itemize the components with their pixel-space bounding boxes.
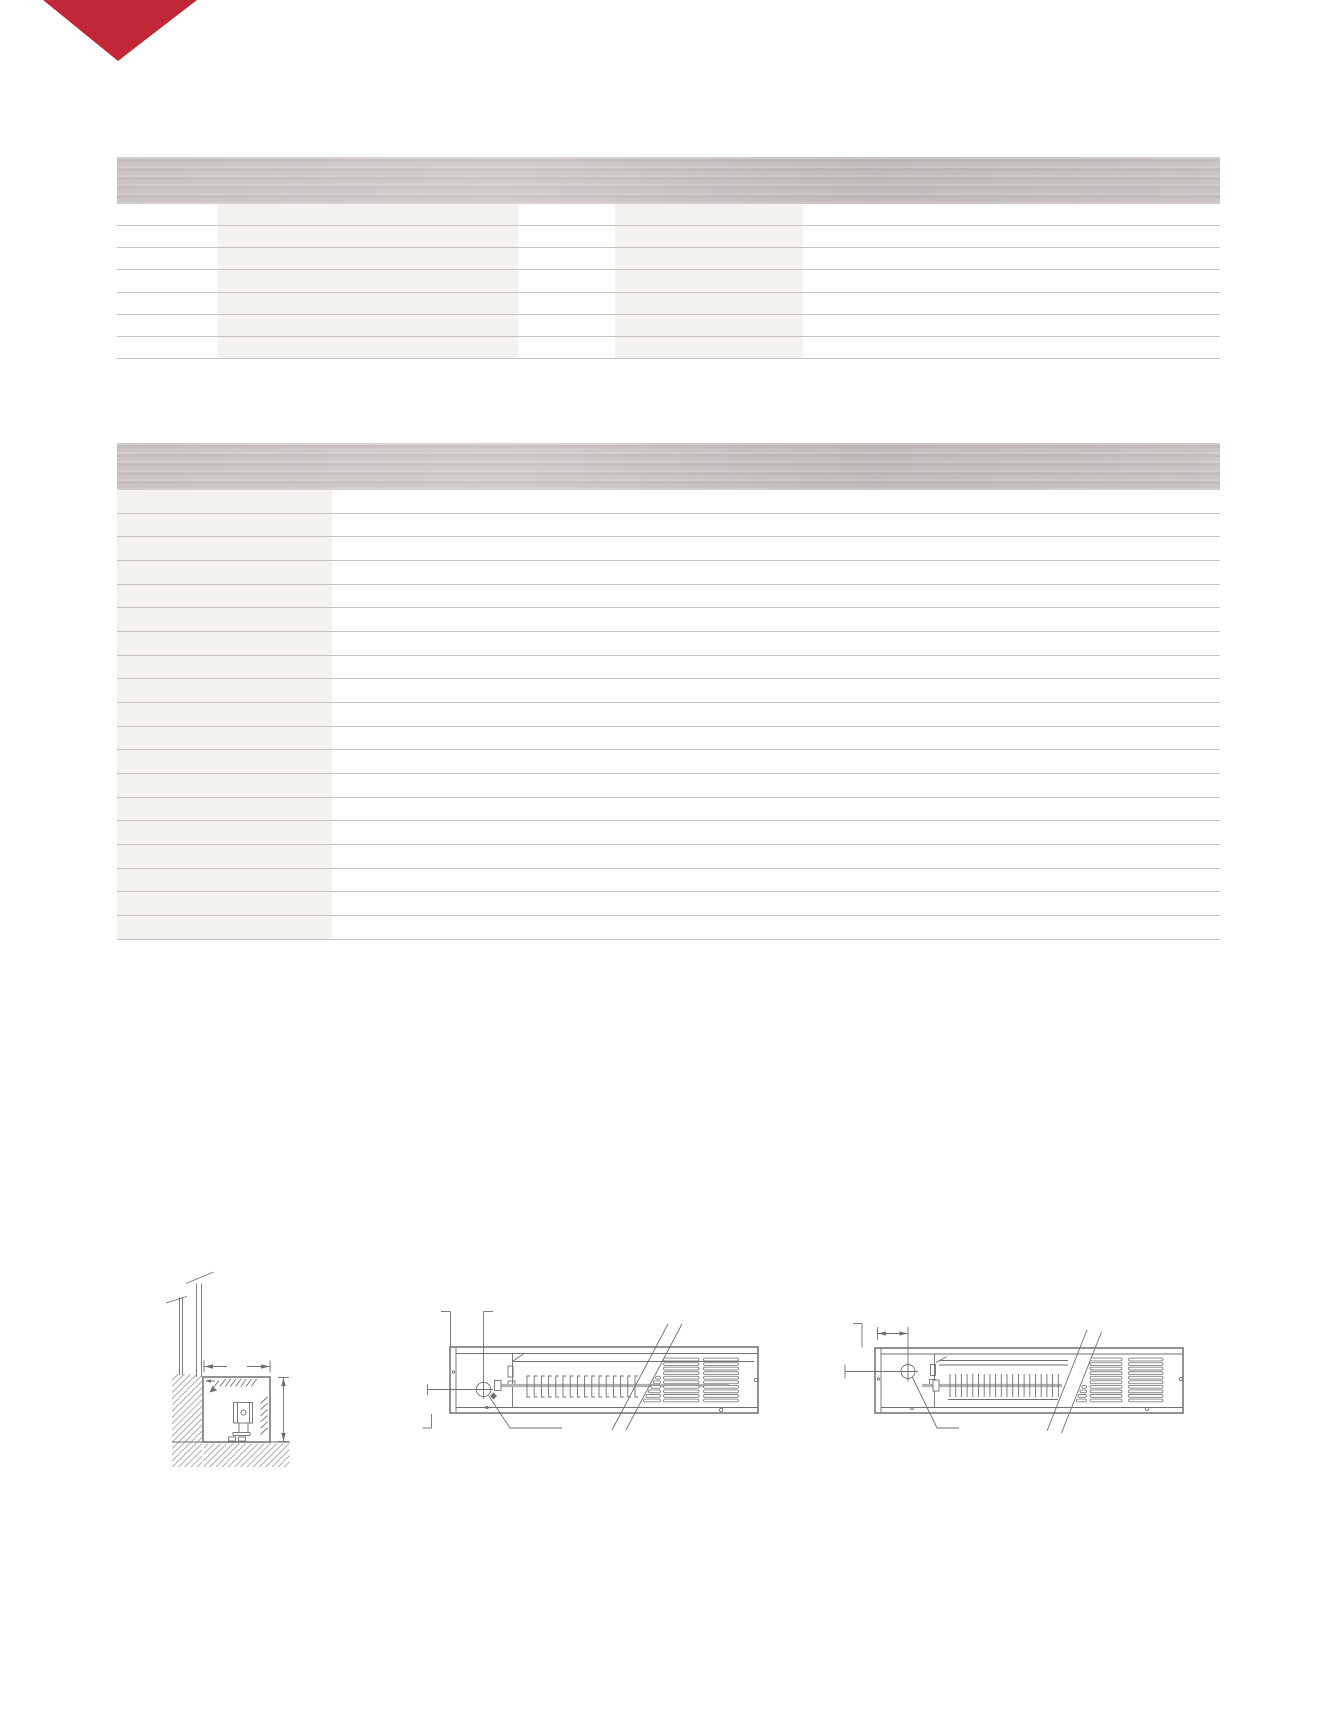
- document-page: [0, 0, 1338, 1731]
- table-row: [117, 750, 1220, 774]
- valve-symbol: [428, 1312, 498, 1400]
- hatched-wall: [172, 1374, 202, 1467]
- spec-table-upper: [117, 157, 1220, 359]
- table-row: [117, 774, 1220, 798]
- table-row: [117, 490, 1220, 514]
- fan-unit: [229, 1403, 253, 1442]
- hatch-tick-marks: [220, 1379, 268, 1435]
- table-row: [117, 608, 1220, 632]
- table-body: [117, 490, 1220, 940]
- table-row: [117, 585, 1220, 609]
- table-row: [117, 337, 1220, 359]
- table-row: [117, 798, 1220, 822]
- table-row: [117, 845, 1220, 869]
- triangle-down-icon: [43, 0, 197, 61]
- wall-section-drawing: [166, 1272, 290, 1467]
- hatched-floor: [204, 1444, 290, 1468]
- table-row: [117, 632, 1220, 656]
- table-row: [117, 869, 1220, 893]
- table-header-band: [117, 157, 1220, 204]
- spec-table-lower: [117, 443, 1220, 940]
- table-row: [117, 293, 1220, 315]
- table-row: [117, 537, 1220, 561]
- table-row: [117, 821, 1220, 845]
- outlet-grille: [1076, 1358, 1163, 1402]
- convector-plan-drawing-2: [845, 1324, 1183, 1434]
- table-body: [117, 204, 1220, 359]
- convector-plan-drawing-1: [423, 1312, 759, 1431]
- table-row: [117, 226, 1220, 248]
- table-row: [117, 656, 1220, 680]
- table-row: [117, 248, 1220, 270]
- outlet-grille: [644, 1358, 739, 1402]
- table-row: [117, 679, 1220, 703]
- table-row: [117, 514, 1220, 538]
- width-dimension: [204, 1361, 270, 1373]
- table-row: [117, 204, 1220, 226]
- valve-symbol: [898, 1362, 918, 1382]
- leader-line: [489, 1396, 563, 1429]
- table-row: [117, 315, 1220, 337]
- table-row: [117, 916, 1220, 940]
- height-dimension: [278, 1378, 289, 1442]
- table-row: [117, 727, 1220, 751]
- table-row: [117, 892, 1220, 916]
- table-header-band: [117, 443, 1220, 490]
- table-row: [117, 703, 1220, 727]
- convector-body: [450, 1347, 758, 1413]
- table-row: [117, 561, 1220, 585]
- table-row: [117, 270, 1220, 292]
